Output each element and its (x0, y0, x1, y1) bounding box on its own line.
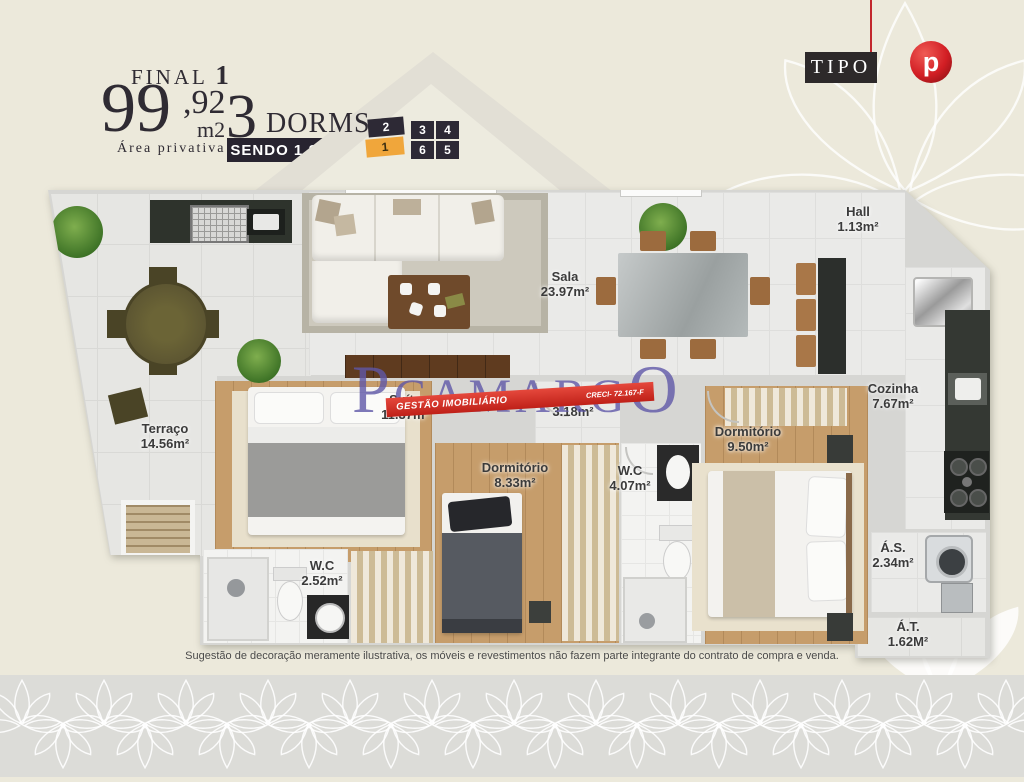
counter-chair (796, 263, 816, 295)
area-unit: m2 (197, 117, 225, 143)
bathroom-vanity (307, 595, 349, 639)
plant (51, 206, 103, 258)
unit-cell-1-highlighted: 1 (365, 136, 404, 157)
sideboard-counter (818, 258, 846, 374)
closet-suite-lower (351, 551, 433, 643)
shower (623, 577, 687, 643)
nightstand (827, 435, 853, 463)
unit-cell-2: 2 (367, 116, 404, 137)
decorative-flower-band (0, 675, 1024, 777)
area-caption: Área privativa (117, 141, 225, 157)
shower (207, 557, 269, 641)
label-dormitorio-833: Dormitório8.33m² (482, 461, 548, 491)
banner-left-text: GESTÃO IMOBILIÁRIO (396, 395, 508, 413)
coffee-table (388, 275, 470, 329)
label-sala: Sala23.97m² (541, 270, 589, 300)
toilet (663, 541, 691, 581)
disclaimer-text: Sugestão de decoração meramente ilustrat… (112, 650, 912, 662)
terrace-sink (247, 209, 285, 235)
unit-cell-6: 6 (411, 141, 434, 159)
dining-chair (690, 231, 716, 251)
banner-creci-text: CRECI- 72.167-F (586, 387, 644, 400)
counter-chair (796, 299, 816, 331)
unit-cell-5: 5 (436, 141, 459, 159)
label-cozinha: Cozinha7.67m² (868, 382, 919, 412)
dining-chair (596, 277, 616, 305)
toilet (277, 581, 303, 621)
washing-machine (925, 535, 973, 583)
nightstand (529, 601, 551, 623)
counter-chair (796, 335, 816, 367)
tipo-badge: TIPO (805, 52, 877, 83)
dorms-label: DORMS. (266, 108, 379, 140)
laundry-cabinet (941, 583, 973, 613)
label-hall-entrada: Hall1.13m² (837, 205, 878, 235)
stove (944, 451, 989, 513)
dorms-number: 3 (226, 86, 257, 148)
dining-chair (750, 277, 770, 305)
double-bed (708, 471, 852, 617)
label-area-servico: Á.S.2.34m² (872, 541, 913, 571)
kitchen-sink (948, 373, 987, 405)
label-terraco: Terraço14.56m² (141, 422, 189, 452)
sofa-pillow (393, 199, 421, 215)
dining-chair (690, 339, 716, 359)
label-wc-407: W.C4.07m² (609, 464, 650, 494)
dining-chair (640, 231, 666, 251)
grill (190, 205, 249, 243)
sofa-pillow (334, 214, 357, 237)
dining-table (618, 253, 748, 337)
unit-cell-3: 3 (411, 121, 434, 139)
window (620, 186, 702, 197)
plant (237, 339, 281, 383)
unit-cell-4: 4 (436, 121, 459, 139)
nightstand (827, 613, 853, 641)
pergola-bench (121, 500, 195, 558)
single-bed (442, 493, 522, 633)
red-accent-line (870, 0, 872, 54)
brand-logo: p (910, 41, 952, 83)
terrace-round-table (123, 281, 209, 367)
label-area-tecnica: Á.T.1.62M² (888, 620, 928, 650)
label-dormitorio-950: Dormitório9.50m² (715, 425, 781, 455)
label-wc-252: W.C2.52m² (301, 559, 342, 589)
sofa-pillow (471, 199, 495, 224)
closet (725, 388, 847, 426)
toilet-tank (659, 525, 695, 541)
area-value: 99 (101, 74, 171, 144)
